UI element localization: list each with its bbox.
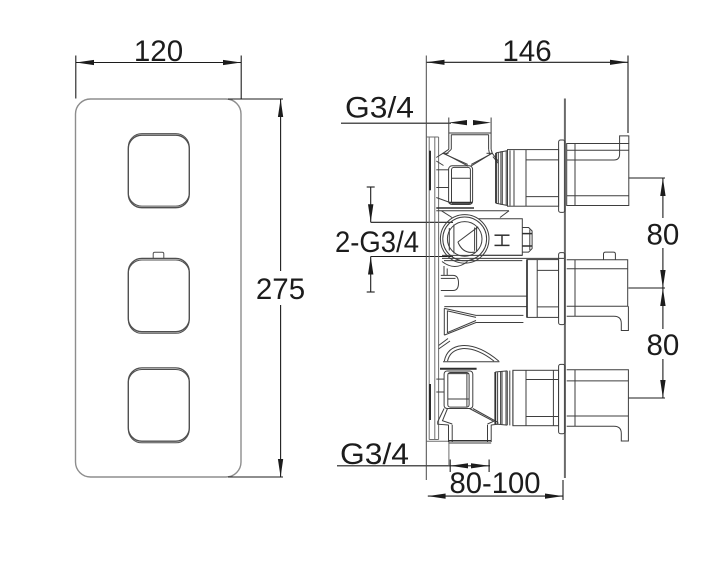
- svg-text:275: 275: [256, 273, 305, 306]
- svg-text:G3/4: G3/4: [340, 438, 409, 471]
- svg-text:2-G3/4: 2-G3/4: [335, 226, 419, 259]
- svg-text:G3/4: G3/4: [345, 92, 414, 125]
- svg-text:80-100: 80-100: [450, 467, 541, 500]
- svg-text:146: 146: [502, 35, 551, 68]
- svg-text:80: 80: [646, 218, 679, 251]
- svg-text:80: 80: [646, 329, 679, 362]
- svg-text:120: 120: [134, 35, 183, 68]
